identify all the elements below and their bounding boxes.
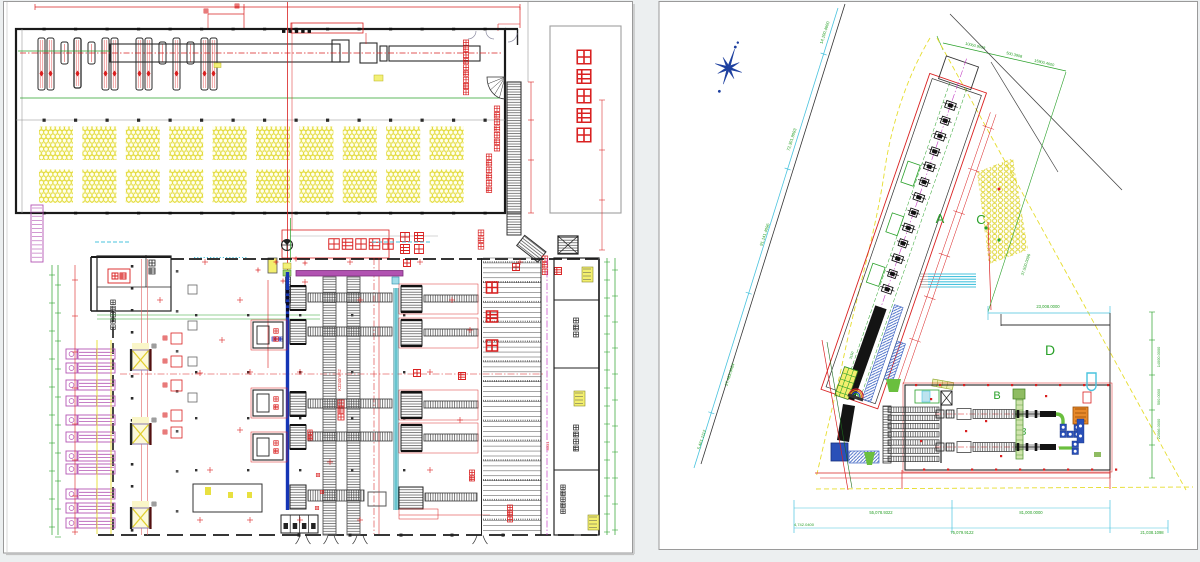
svg-text:81,000.0000: 81,000.0000 (1019, 510, 1043, 515)
svg-text:4331: 4331 (545, 441, 550, 451)
svg-text:500.0000: 500.0000 (1156, 388, 1161, 405)
svg-text:B: B (993, 390, 1000, 402)
svg-text:C: C (976, 212, 985, 227)
svg-text:D: D (1045, 342, 1055, 358)
svg-text:4,742.0400: 4,742.0400 (794, 522, 815, 527)
svg-text:75,079.9122: 75,079.9122 (950, 530, 974, 535)
svg-text:A: A (936, 211, 945, 226)
svg-text:21,038.1098: 21,038.1098 (1140, 530, 1164, 535)
svg-text:23,008.0000: 23,008.0000 (1036, 304, 1060, 309)
svg-text:K3240mm2: K3240mm2 (337, 369, 342, 391)
svg-text:22066.0000: 22066.0000 (1156, 418, 1161, 439)
svg-text:55,078.9322: 55,078.9322 (869, 510, 893, 515)
svg-text:14000.0000: 14000.0000 (1156, 346, 1161, 367)
